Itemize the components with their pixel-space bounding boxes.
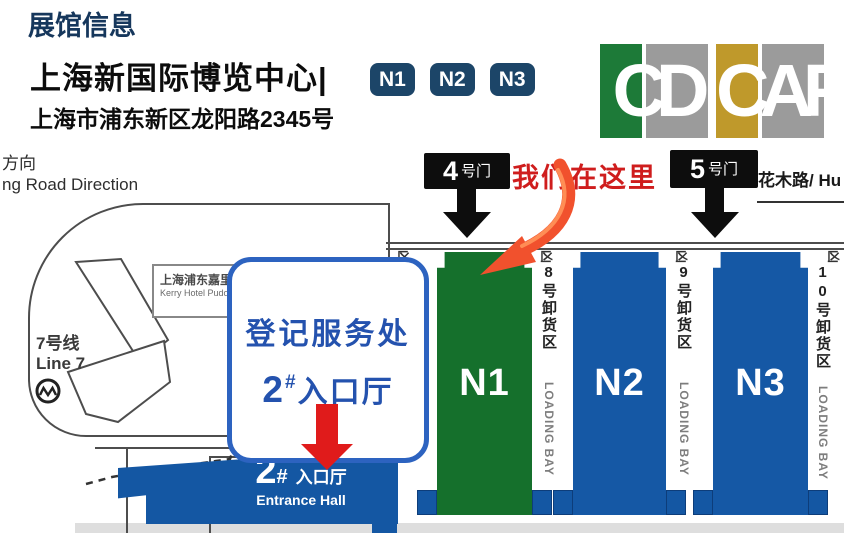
gate-5-arrowhead-icon	[691, 212, 739, 238]
dock-tab	[532, 490, 552, 515]
callout-line1: 登记服务处	[246, 309, 411, 353]
venue-address: 上海市浦东新区龙阳路2345号	[30, 100, 334, 134]
venue-name: 上海新国际博览中心|	[30, 53, 328, 98]
metro-line7-label: 7号线 Line 7	[36, 334, 85, 374]
dock-icon: 凶	[825, 250, 844, 263]
page-title: 展馆信息	[28, 4, 136, 43]
hall-n1: N1	[437, 252, 532, 515]
dock-tab	[693, 490, 713, 515]
dock-tab	[553, 490, 573, 515]
red-arrow-icon	[316, 404, 338, 444]
hall-badge-row: N1 N2 N3	[370, 63, 535, 96]
hall-badge-n2: N2	[430, 63, 475, 96]
organizer-logo-green-icon: CD	[600, 40, 712, 142]
loading-bay-en: LOADING BAY	[816, 386, 830, 480]
hall-badge-n1: N1	[370, 63, 415, 96]
orange-arrow-icon	[440, 140, 610, 290]
red-arrowhead-icon	[301, 444, 353, 470]
dock-tab	[417, 490, 437, 515]
entrance-strip	[372, 452, 397, 533]
loading-bay-en: LOADING BAY	[677, 382, 691, 476]
dock-tab	[666, 490, 686, 515]
logo-letters: CAF	[716, 48, 828, 134]
dock-tab	[808, 490, 828, 515]
hall-badge-n3: N3	[490, 63, 535, 96]
hall-n2: N2	[573, 252, 666, 515]
loading-bay-en: LOADING BAY	[542, 382, 556, 476]
gate-5-sign: 5 号门	[670, 150, 758, 188]
gate-5-arrow-icon	[705, 188, 724, 213]
loading-bay-cn: 10号卸货区	[812, 264, 833, 370]
hall-n3: N3	[713, 252, 808, 515]
organizer-logo-gold-icon: CAF	[716, 40, 828, 142]
huamu-road-label: 花木路/ Hu	[758, 166, 841, 191]
dock-icon: 凶	[673, 250, 692, 263]
loading-bay-cn: 9号卸货区	[673, 264, 694, 351]
exhibition-info-page: 展馆信息 上海新国际博览中心| N1 N2 N3 上海市浦东新区龙阳路2345号…	[0, 0, 844, 533]
logo-letters: CD	[600, 48, 712, 134]
